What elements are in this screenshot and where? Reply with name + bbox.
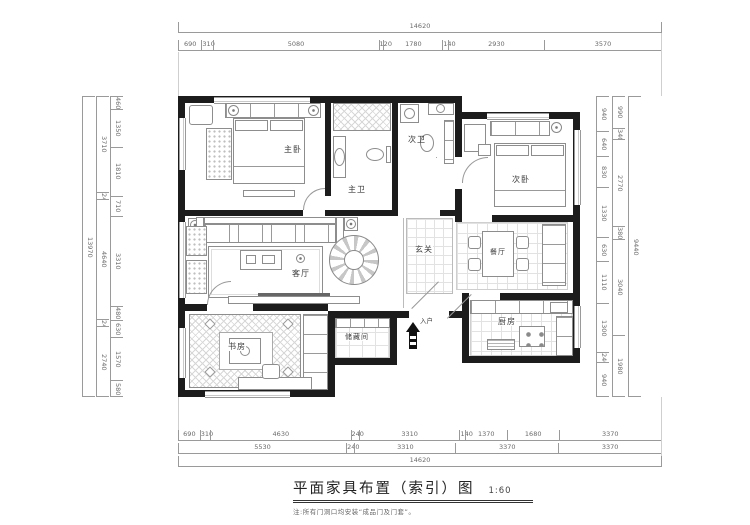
nightstand [478,144,491,156]
basin-icon [436,104,445,113]
title-row: 平面家具布置（索引）图 1:60 [293,477,533,503]
dimension-value: 1300 [597,303,609,352]
wall-storage-bottom [330,358,397,365]
wall-bath-bath2 [392,96,398,210]
window-left-lower [179,328,186,378]
entrance-arrow-shaft [409,332,417,349]
floor-medallion [329,235,379,285]
dim-bottom-total: 14620 [178,456,662,467]
kitchen-sink-icon [550,302,568,313]
dim-bottom-row1: 69031046302403310140137016803370 [178,430,662,441]
dimension-value: 2930 [448,40,544,51]
storage-shelf [335,318,390,328]
dimension-value: 3310 [111,216,123,306]
dim-right-total: 9440 [628,96,641,397]
room-label-living: 客厅 [292,270,310,278]
dimension-value: 690 [178,40,201,51]
drawing-note: 注:所有门洞口均安装“成品门及门套”。 [293,506,533,516]
armchair [189,105,213,125]
wall-under-baths [325,210,398,216]
dimension-value: 630 [597,237,609,261]
room-label-guest-bedroom: 次卧 [512,176,530,184]
sink-icon [334,148,345,166]
dimension-value: 3370 [558,443,662,454]
washer-drum [404,108,415,119]
bedroom-rug [206,128,232,180]
dimension-value: 3310 [354,443,455,454]
pillow [496,145,529,156]
sofa-back [204,217,336,224]
dimension-value: 240 [597,352,609,362]
extension-line [178,397,179,430]
door-arc-guest-bedroom [462,157,488,183]
dimension-value: 5530 [178,443,346,454]
pillow [235,120,268,131]
dimension-value: 580 [111,380,123,397]
dimension-value: 990 [613,96,625,128]
title-block: 平面家具布置（索引）图 1:60 注:所有门洞口均安装“成品门及门套”。 [293,477,533,516]
dimension-value: 240 [97,192,109,199]
door-anchor [436,157,437,158]
dimension-value: 3710 [97,96,109,192]
dimension-value: 380 [613,226,625,239]
dim-top-total: 14620 [178,22,662,33]
extension-line [178,52,179,96]
dimension-value: 630 [111,320,123,338]
plant-box [186,226,207,256]
dimension-value: 1570 [111,337,123,380]
wall-living-study-right [253,304,328,311]
dimension-value: 1980 [613,335,625,397]
room-label-study: 书房 [228,343,246,351]
dimension-value: 690 [178,430,200,441]
dimension-value: 1370 [465,430,507,441]
dimension-value: 480 [111,306,123,320]
floor-plan-sheet: 14620 6903105080120178014029303570 69031… [0,0,750,525]
dimension-value: 3040 [613,239,625,334]
pillow [270,120,303,131]
dimension-value: 4640 [97,199,109,319]
room-label-foyer: 玄关 [415,246,433,254]
dimension-value: 3370 [455,443,558,454]
room-label-guest-bath: 次卫 [408,136,426,144]
dining-chair [468,236,481,249]
dimension-value: 4630 [210,430,350,441]
dining-chair [468,258,481,271]
window-study [205,391,290,398]
table-decor [246,255,256,264]
bath-cabinet [444,120,454,164]
extension-line [661,33,662,96]
kitchen-counter-right [556,316,573,356]
dimension-value: 710 [111,196,123,216]
window-bed2 [487,113,549,120]
partition-hall-line [403,218,404,308]
dim-top-segments: 6903105080120178014029303570 [178,40,662,51]
window-balcony [179,222,186,298]
dim-left-inner: 4601350181071033104806301570580 [110,96,123,397]
plant-box [186,260,207,294]
dimension-value: 1780 [383,40,442,51]
room-label-storage: 储藏间 [345,334,369,341]
dimension-value: 310 [201,40,212,51]
room-label-master-bedroom: 主卧 [284,146,302,154]
dimension-value: 240 [97,319,109,326]
dimension-value: 9440 [629,96,641,397]
dimension-value: 14620 [178,22,662,33]
dimension-value: 830 [597,156,609,187]
toilet-tank [386,146,391,163]
dimension-value: 3370 [559,430,662,441]
wall-under-masterbed [185,210,303,216]
dim-right-mid: 990340277038030401980 [612,96,625,397]
dim-left-total: 13970 [82,96,95,397]
extension-line [661,397,662,456]
dimension-value: 460 [111,96,123,109]
window-left-upper [179,118,186,170]
bed-bench [243,190,295,197]
tv-cabinet [228,296,360,304]
wall-bottom-right [462,356,580,363]
dimension-value: 1680 [507,430,559,441]
room-label-master-bath: 主卫 [348,186,366,194]
wall-corner-stub [455,215,462,222]
downlight-icon [228,105,239,116]
room-label-dining: 餐厅 [490,249,506,256]
window-right-upper [574,130,581,205]
wall-study-right [328,311,335,397]
door-arc-master-bedroom [303,188,325,210]
dim-right-inner: 940640830133063011101300240940 [596,96,609,397]
floor-lamp-icon [296,254,305,263]
dimension-value: 2740 [97,326,109,397]
dimension-value: 5080 [213,40,379,51]
blanket-line [495,190,565,191]
drawing-title: 平面家具布置（索引）图 [293,477,475,498]
sideboard-fridge [542,224,566,286]
table-lamp-icon [346,219,356,229]
wall-bed2-bottom [492,215,580,222]
dim-bottom-row2: 5530240331033703370 [178,443,662,454]
wardrobe [490,121,550,136]
floor-vent [487,339,515,350]
downlight-icon [308,105,319,116]
sofa-seats [204,224,336,243]
dimension-value: 940 [597,96,609,131]
foyer-floor-tiles [406,218,453,294]
dimension-value: 1810 [111,147,123,196]
room-label-kitchen: 厨房 [498,318,516,326]
entrance-label: 入户 [420,318,433,325]
dimension-value: 3570 [544,40,662,51]
wall-living-study-left [185,304,207,311]
dimension-value: 240 [346,443,354,454]
table-decor [262,255,275,264]
stove-icon [519,326,545,347]
dimension-value: 240 [351,430,359,441]
pillow [531,145,564,156]
wall-bed2-left-upper [455,119,462,157]
window-kitchen [574,306,581,348]
wall-kitchen-left [462,293,469,363]
wardrobe [225,103,321,118]
dimension-value: 2770 [613,139,625,226]
dimension-value: 14620 [178,456,662,467]
dimension-value: 640 [597,131,609,155]
tv-icon [258,293,330,296]
blanket-line [234,166,304,167]
dimension-value: 1110 [597,261,609,303]
shower-tiles [333,103,391,131]
drawing-scale: 1:60 [489,486,512,496]
dimension-value: 1330 [597,187,609,237]
dining-chair [516,236,529,249]
dim-left-mid: 371024046402402740 [96,96,109,397]
wall-storage-right [390,311,397,365]
wall-kitchen-dining [500,293,580,300]
dimension-value: 340 [613,128,625,140]
wall-masterbed-bath [325,96,331,196]
dimension-value: 3310 [359,430,460,441]
dining-chair [516,258,529,271]
dimension-value: 1350 [111,109,123,146]
dimension-value: 310 [200,430,210,441]
entrance-arrow-icon [406,322,420,332]
desk-chair [262,364,280,379]
dimension-value: 940 [597,362,609,397]
toilet-icon [366,148,384,161]
dimension-value: 13970 [83,96,95,397]
downlight-icon [551,122,562,133]
